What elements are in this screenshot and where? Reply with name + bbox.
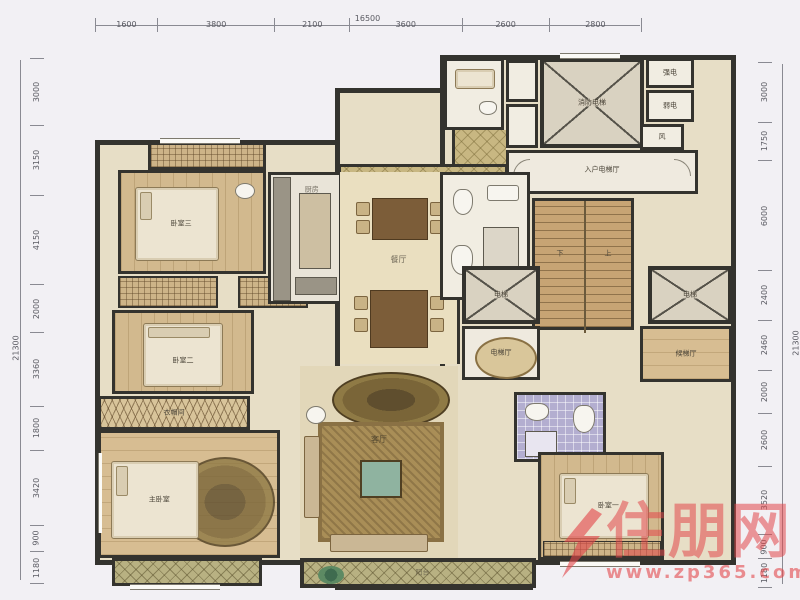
- staircase: 下 上: [532, 198, 634, 330]
- bedroom3-bed: 卧室三: [135, 187, 219, 261]
- dim-left-total-line: [20, 60, 21, 580]
- dim-left-total: 21300: [4, 335, 29, 354]
- dim-segment: 1800: [30, 407, 44, 451]
- fire-elevator-label: 消防电梯: [576, 100, 608, 107]
- waiting-hall: 候梯厅: [640, 326, 732, 382]
- elevator-left: 电梯: [462, 266, 540, 324]
- stair-divider: [584, 201, 586, 333]
- master-bedroom-label: 主卧室: [149, 497, 170, 504]
- toilet-fixture: [453, 189, 473, 215]
- zp365-logo-icon: [558, 508, 604, 582]
- living-label: 客厅: [371, 436, 387, 444]
- sink-fixture: [525, 403, 549, 421]
- bedroom3-label: 卧室三: [171, 221, 192, 228]
- dim-segment: 2000: [30, 285, 44, 333]
- dim-segment: 3000: [758, 63, 772, 123]
- dim-segment: 3800: [158, 18, 276, 32]
- living-room: 客厅: [300, 366, 458, 560]
- dim-segment: 1600: [96, 18, 158, 32]
- stair-down-label: 下: [556, 250, 563, 257]
- sink-fixture: [487, 185, 519, 201]
- master-bedroom: 主卧室: [98, 430, 280, 558]
- dim-segment: 2460: [758, 321, 772, 371]
- elevator-lobby: 电梯厅: [462, 326, 540, 380]
- elevator-right: 电梯: [648, 266, 732, 324]
- door-arc: [674, 159, 691, 176]
- sink-fixture: [479, 101, 497, 115]
- dim-segment: 4150: [30, 196, 44, 285]
- cloakroom: 衣帽间: [98, 396, 250, 430]
- window: [560, 53, 620, 59]
- sofa-bottom: [330, 534, 428, 552]
- elevator-left-label: 电梯: [493, 292, 509, 299]
- dim-segment: 1180: [30, 552, 44, 583]
- kitchen-counter: [273, 177, 291, 301]
- dim-segment: 2800: [550, 18, 641, 32]
- weak-electric-room: 弱电: [646, 90, 694, 122]
- coffee-table: [360, 460, 402, 498]
- maid-room: [444, 58, 504, 130]
- window: [130, 584, 220, 590]
- dining-label: 餐厅: [391, 256, 407, 264]
- dim-segment: 3600: [350, 18, 463, 32]
- weak-electric-label: 弱电: [663, 103, 677, 110]
- meter-shaft-a: [506, 60, 538, 102]
- dim-segment: 2600: [758, 414, 772, 467]
- dim-top-segments: 1600 3800 2100 3600 2600 2800: [95, 18, 642, 32]
- balcony-label: 阳台: [416, 570, 430, 577]
- armchair: [306, 406, 326, 424]
- dim-left-segments: 3000 3150 4150 2000 3360 1800 3420 900 1…: [30, 58, 44, 584]
- floorplan-photo: 16500 1600 3800 2100 3600 2600 2800 2130…: [0, 0, 800, 600]
- elevator-right-label: 电梯: [682, 292, 698, 299]
- dim-segment: 3420: [30, 451, 44, 526]
- kitchen-counter: [295, 277, 337, 295]
- watermark-site-url: www.zp365.com: [606, 564, 800, 582]
- kitchen-label: 厨房: [305, 187, 319, 194]
- dim-segment: 900: [30, 526, 44, 552]
- window: [98, 453, 102, 533]
- dim-segment: 1750: [758, 123, 772, 162]
- strong-electric-label: 强电: [663, 70, 677, 77]
- dim-segment: 2400: [758, 271, 772, 320]
- elevator-hall: 入户电梯厅: [506, 150, 698, 194]
- dining-table-1: [372, 198, 428, 240]
- window: [160, 138, 240, 144]
- watermark-site-name: 住朋网: [606, 502, 800, 562]
- elevator-lobby-label: 电梯厅: [491, 350, 512, 357]
- maid-bed: [455, 69, 495, 89]
- dresser-cabinet: [118, 276, 218, 308]
- dim-segment: 3000: [30, 59, 44, 126]
- watermark: 住朋网 www.zp365.com: [558, 502, 800, 582]
- dim-segment: 2000: [758, 371, 772, 414]
- bedroom2: 卧室二: [112, 310, 254, 394]
- dining-table-2: [370, 290, 428, 348]
- floor-medallion: [332, 372, 450, 428]
- dim-segment: 3150: [30, 126, 44, 196]
- elevator-hall-label: 入户电梯厅: [585, 167, 620, 174]
- kitchen-island: [299, 193, 331, 269]
- master-balcony: [112, 558, 262, 586]
- bedroom2-label: 卧室二: [173, 358, 194, 365]
- strong-electric-room: 强电: [646, 58, 694, 88]
- dim-right-total: 21300: [784, 330, 800, 349]
- vent-shaft: 风: [640, 124, 684, 150]
- toilet-fixture: [573, 405, 595, 433]
- sofa-left: [304, 436, 320, 518]
- balcony: 阳台: [300, 558, 536, 588]
- meter-shaft-b: [506, 104, 538, 148]
- vent-shaft-label: 风: [659, 134, 666, 141]
- master-bed: 主卧室: [111, 461, 199, 539]
- plant: [318, 566, 344, 584]
- dim-segment: 2100: [275, 18, 350, 32]
- waiting-hall-label: 候梯厅: [676, 351, 697, 358]
- bedroom3: 卧室三: [118, 170, 266, 274]
- kitchen: 厨房: [268, 172, 342, 304]
- bedroom2-bed: 卧室二: [143, 323, 223, 387]
- stool: [235, 183, 255, 199]
- dim-segment: 6000: [758, 161, 772, 271]
- fire-elevator: 消防电梯: [540, 58, 644, 148]
- bedroom3-closet: [148, 142, 266, 170]
- dim-segment: 3360: [30, 333, 44, 407]
- dim-segment: 2600: [463, 18, 550, 32]
- lobby-rug: [475, 337, 537, 379]
- cloakroom-label: 衣帽间: [162, 410, 187, 417]
- stair-up-label: 上: [604, 250, 611, 257]
